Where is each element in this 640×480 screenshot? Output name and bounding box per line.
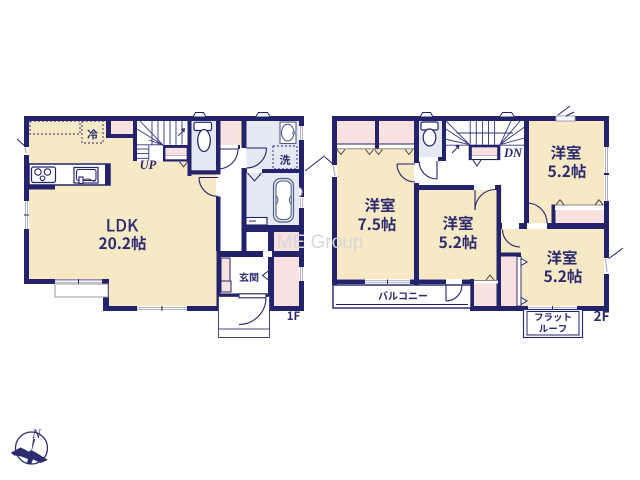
svg-text:DN: DN [503, 146, 523, 160]
svg-text:UP: UP [140, 158, 157, 172]
svg-text:ME Group: ME Group [277, 232, 364, 253]
svg-text:N: N [31, 426, 42, 441]
